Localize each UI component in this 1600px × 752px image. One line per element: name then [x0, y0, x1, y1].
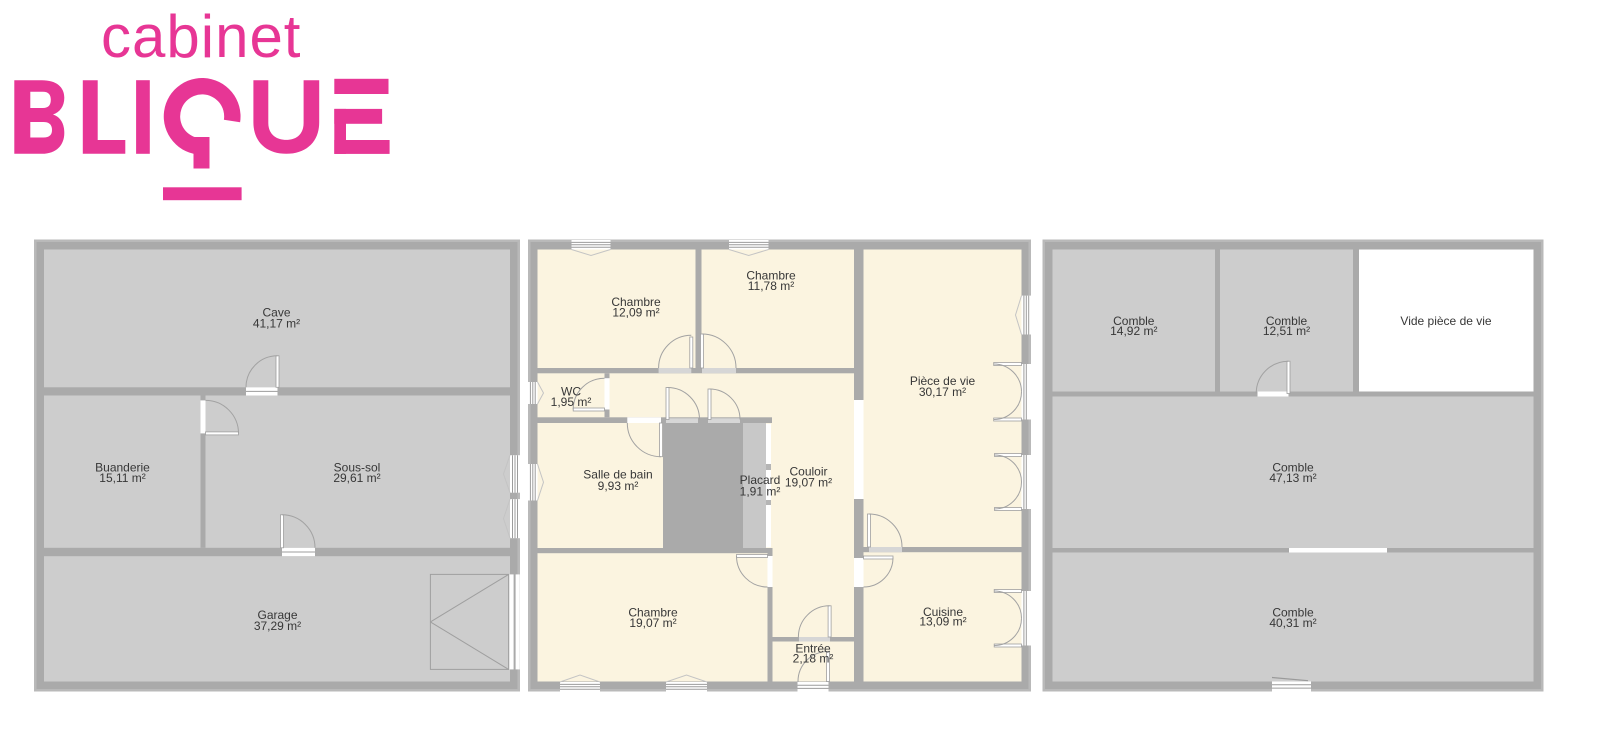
svg-text:41,17 m²: 41,17 m² — [253, 316, 300, 330]
svg-text:12,51 m²: 12,51 m² — [1263, 324, 1310, 338]
svg-text:2,18 m²: 2,18 m² — [793, 652, 834, 666]
svg-text:40,31 m²: 40,31 m² — [1269, 616, 1316, 630]
svg-text:30,17 m²: 30,17 m² — [919, 385, 966, 399]
svg-text:11,78 m²: 11,78 m² — [748, 279, 794, 293]
svg-text:15,11 m²: 15,11 m² — [99, 471, 145, 485]
svg-text:37,29 m²: 37,29 m² — [254, 619, 301, 633]
svg-text:12,09 m²: 12,09 m² — [612, 306, 659, 320]
svg-text:9,93 m²: 9,93 m² — [598, 479, 639, 493]
svg-text:Vide pièce de vie: Vide pièce de vie — [1400, 314, 1492, 328]
svg-text:19,07 m²: 19,07 m² — [629, 616, 676, 630]
svg-text:29,61 m²: 29,61 m² — [333, 471, 380, 485]
svg-text:19,07 m²: 19,07 m² — [785, 476, 832, 490]
svg-text:14,92 m²: 14,92 m² — [1110, 324, 1157, 338]
svg-text:13,09 m²: 13,09 m² — [919, 615, 966, 629]
svg-text:1,91 m²: 1,91 m² — [740, 485, 781, 499]
svg-text:47,13 m²: 47,13 m² — [1269, 471, 1316, 485]
svg-text:cabinet: cabinet — [101, 3, 301, 70]
svg-text:1,95 m²: 1,95 m² — [551, 395, 592, 409]
